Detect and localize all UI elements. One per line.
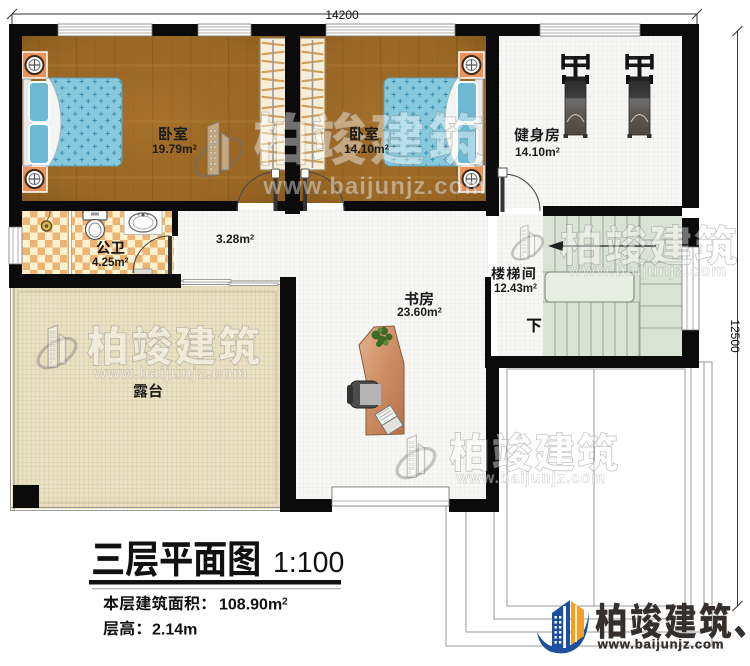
svg-text:www.baijunjz.com: www.baijunjz.com [455, 470, 606, 487]
svg-text:23.60m2: 23.60m2 [397, 305, 442, 319]
svg-text:19.79m2: 19.79m2 [152, 142, 197, 156]
svg-text:2.14m: 2.14m [152, 622, 197, 639]
svg-text:3.28m2: 3.28m2 [216, 232, 254, 246]
svg-text:108.90m2: 108.90m2 [219, 597, 288, 614]
svg-text:4.25m2: 4.25m2 [92, 257, 129, 270]
svg-text:12500: 12500 [728, 319, 742, 353]
svg-text:1:100: 1:100 [273, 547, 344, 579]
svg-text:www.baijunjz.com: www.baijunjz.com [568, 262, 727, 280]
svg-text:14.10m2: 14.10m2 [344, 142, 389, 156]
svg-text:14.10m2: 14.10m2 [515, 145, 560, 159]
svg-text:www.baijunjz.com: www.baijunjz.com [597, 637, 725, 652]
svg-text:14200: 14200 [325, 8, 359, 22]
svg-text:www.baijunjz.com: www.baijunjz.com [262, 173, 486, 200]
svg-text:www.baijunjz.com: www.baijunjz.com [93, 365, 248, 382]
svg-text:12.43m2: 12.43m2 [494, 283, 537, 296]
